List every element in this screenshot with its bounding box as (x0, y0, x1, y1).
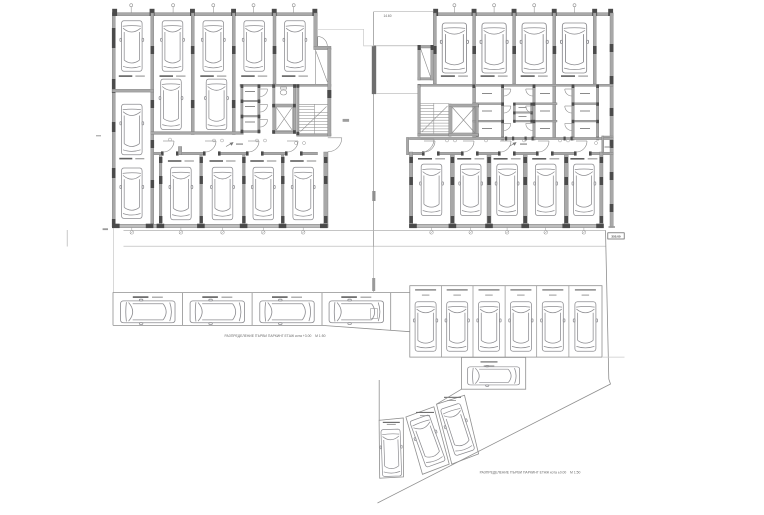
svg-text:355.00: 355.00 (611, 235, 621, 239)
svg-text:РАЗПРЕДЕЛЕНИЕ ПЪРВИ ПАРКИНГ ЕТ: РАЗПРЕДЕЛЕНИЕ ПЪРВИ ПАРКИНГ ЕТАЖ кота ±0… (480, 470, 581, 474)
svg-text:РАЗПРЕДЕЛЕНИЕ ПЪРВИ ПАРКИНГ ЕТ: РАЗПРЕДЕЛЕНИЕ ПЪРВИ ПАРКИНГ ЕТАЖ кота +3… (225, 334, 326, 338)
svg-text:14.60: 14.60 (384, 14, 392, 18)
